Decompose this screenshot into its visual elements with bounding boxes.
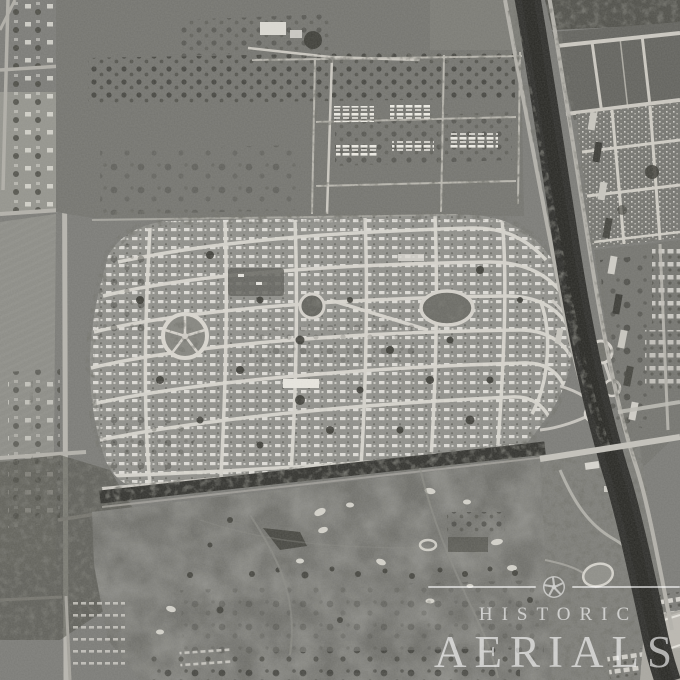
film-grain-overlay — [0, 0, 680, 680]
aerial-photograph — [0, 0, 680, 680]
aerial-photo-viewport: HISTORIC AERIALS — [0, 0, 680, 680]
